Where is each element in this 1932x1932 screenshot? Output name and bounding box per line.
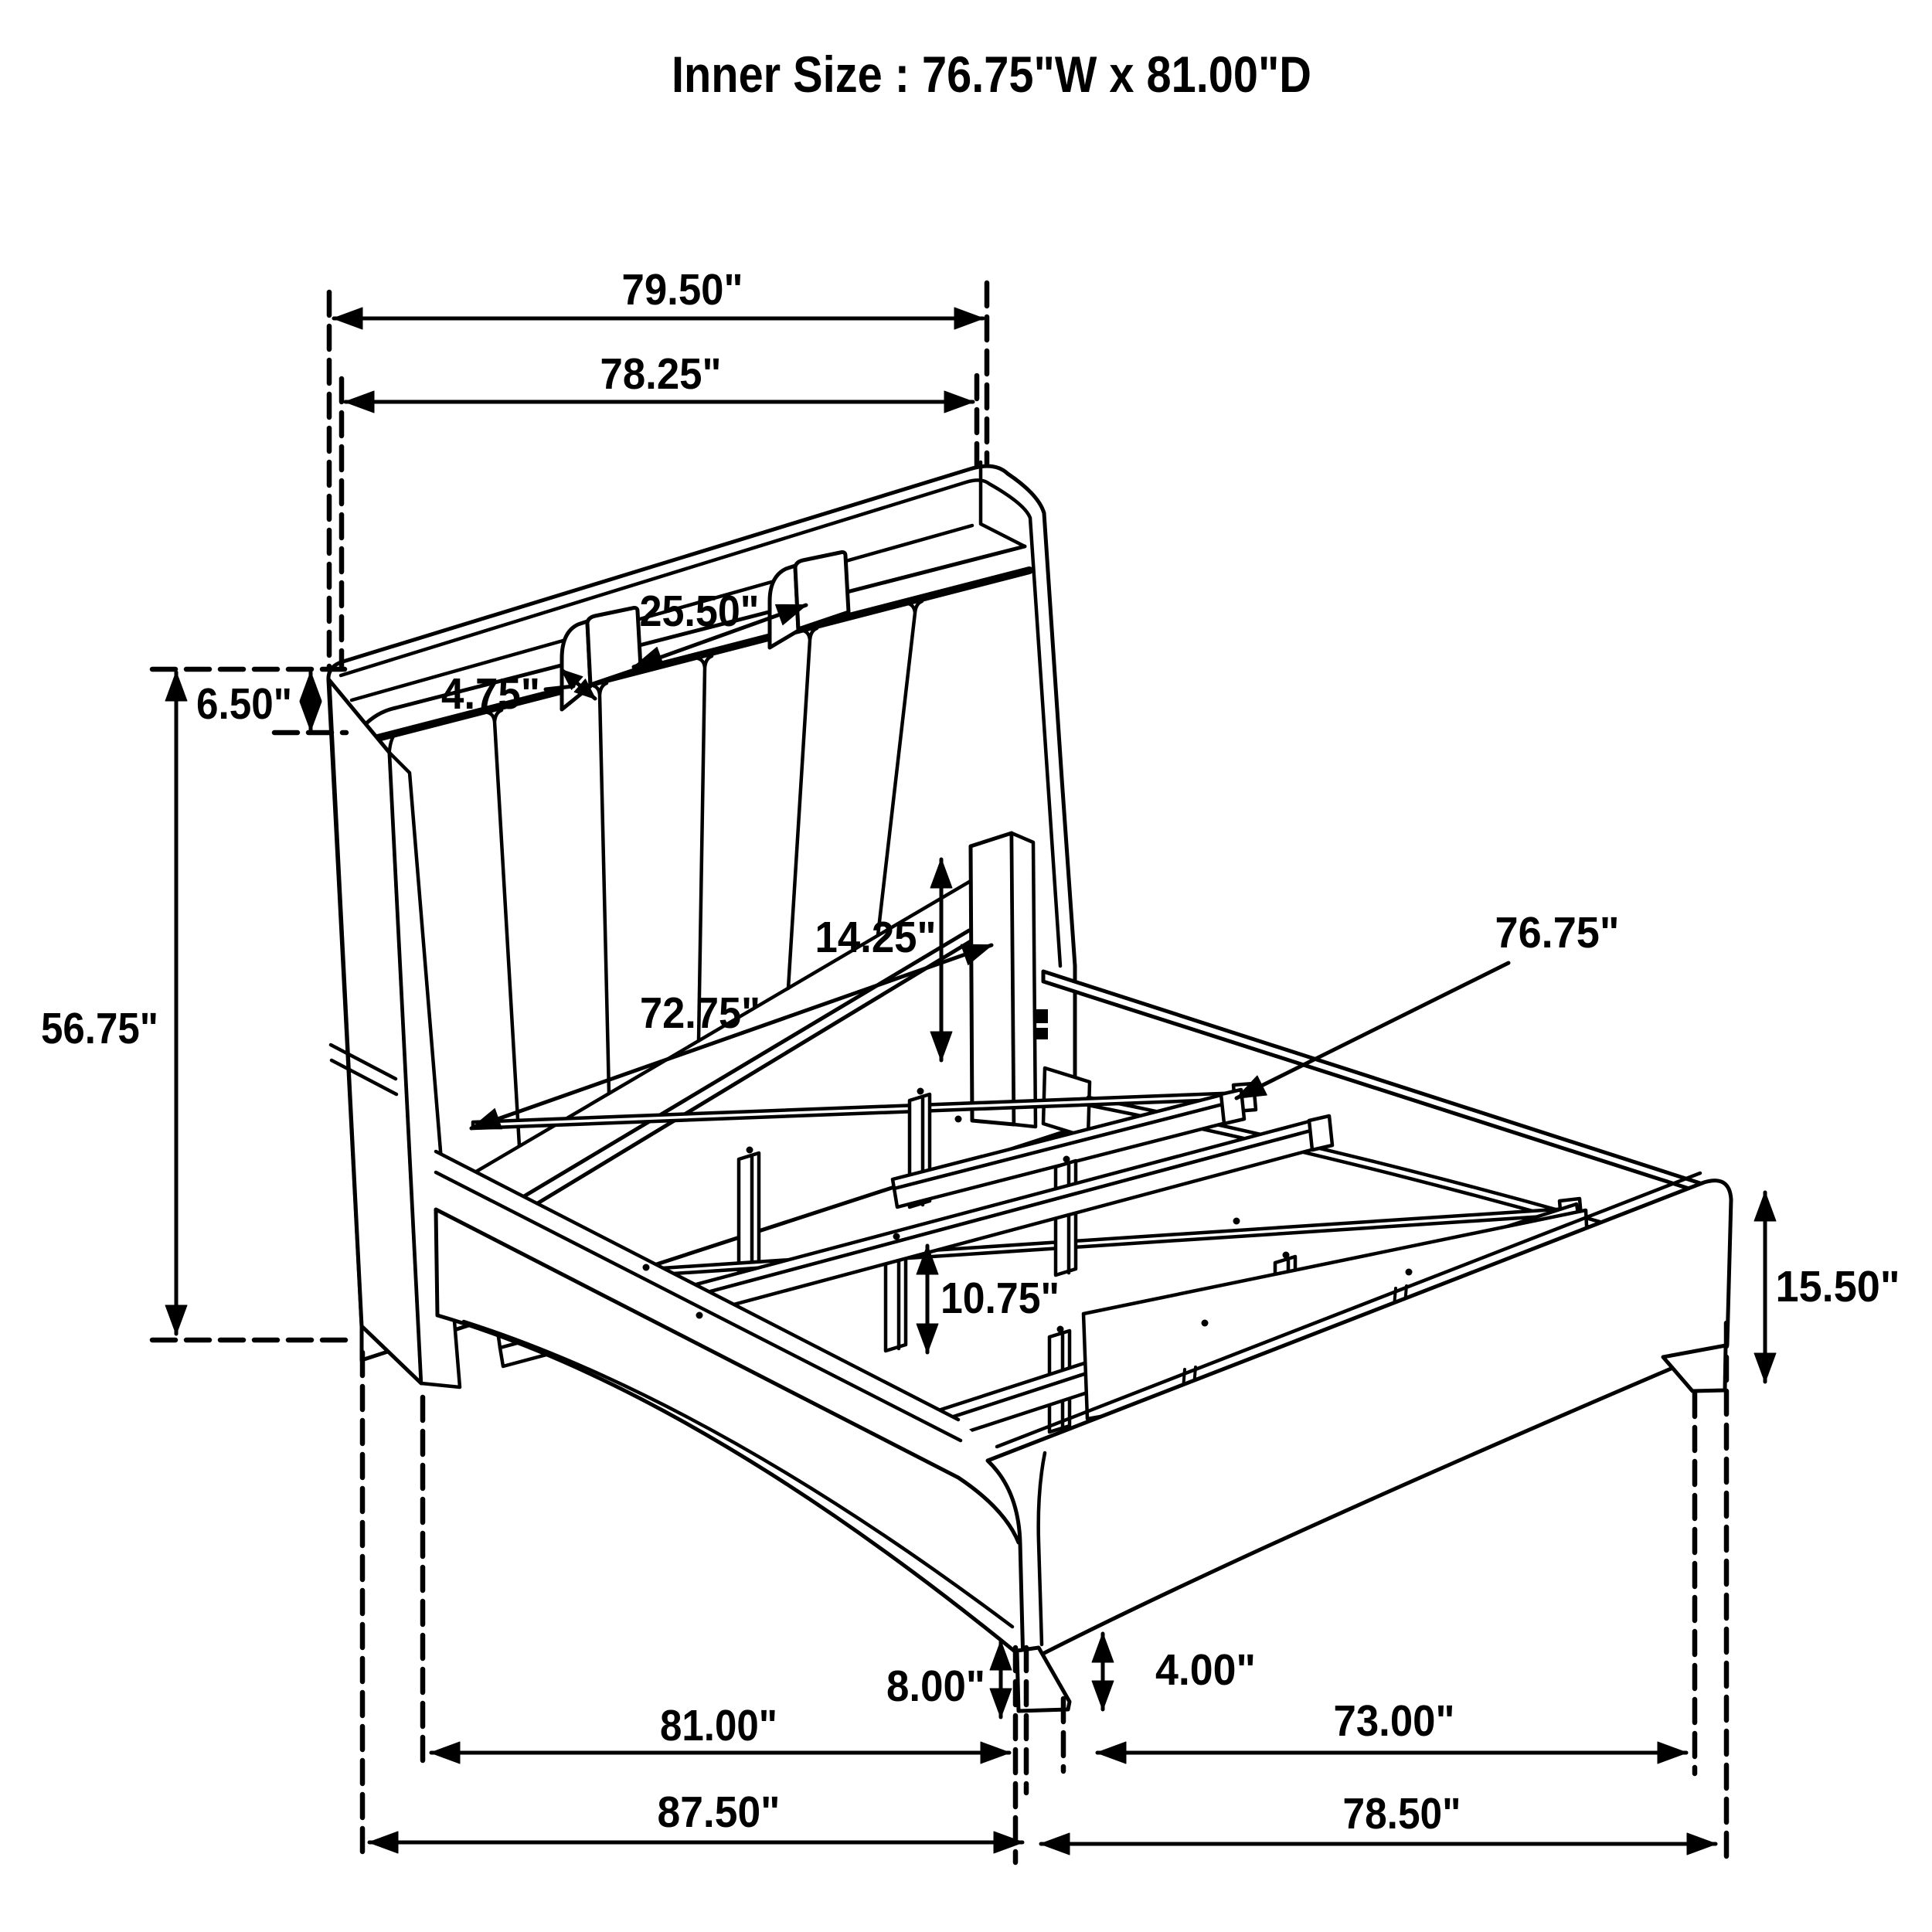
svg-text:78.25": 78.25" xyxy=(600,349,722,399)
svg-text:73.00": 73.00" xyxy=(1334,1696,1455,1746)
svg-text:6.50": 6.50" xyxy=(196,679,292,729)
svg-text:25.50": 25.50" xyxy=(640,587,760,636)
svg-text:4.00": 4.00" xyxy=(1155,1645,1256,1695)
svg-text:Inner Size : 76.75"W x 81.00"D: Inner Size : 76.75"W x 81.00"D xyxy=(672,46,1311,103)
svg-text:76.75": 76.75" xyxy=(1495,908,1620,957)
svg-text:4.75": 4.75" xyxy=(441,669,540,719)
svg-text:87.50": 87.50" xyxy=(658,1787,781,1837)
svg-text:81.00": 81.00" xyxy=(660,1701,777,1750)
svg-text:56.75": 56.75" xyxy=(41,1004,158,1053)
svg-text:14.25": 14.25" xyxy=(815,913,937,962)
svg-text:15.50": 15.50" xyxy=(1776,1262,1900,1311)
svg-text:79.50": 79.50" xyxy=(622,265,743,315)
svg-text:10.75": 10.75" xyxy=(940,1274,1060,1323)
svg-text:72.75": 72.75" xyxy=(640,988,760,1038)
svg-text:8.00": 8.00" xyxy=(886,1662,985,1711)
svg-text:78.50": 78.50" xyxy=(1343,1789,1461,1838)
